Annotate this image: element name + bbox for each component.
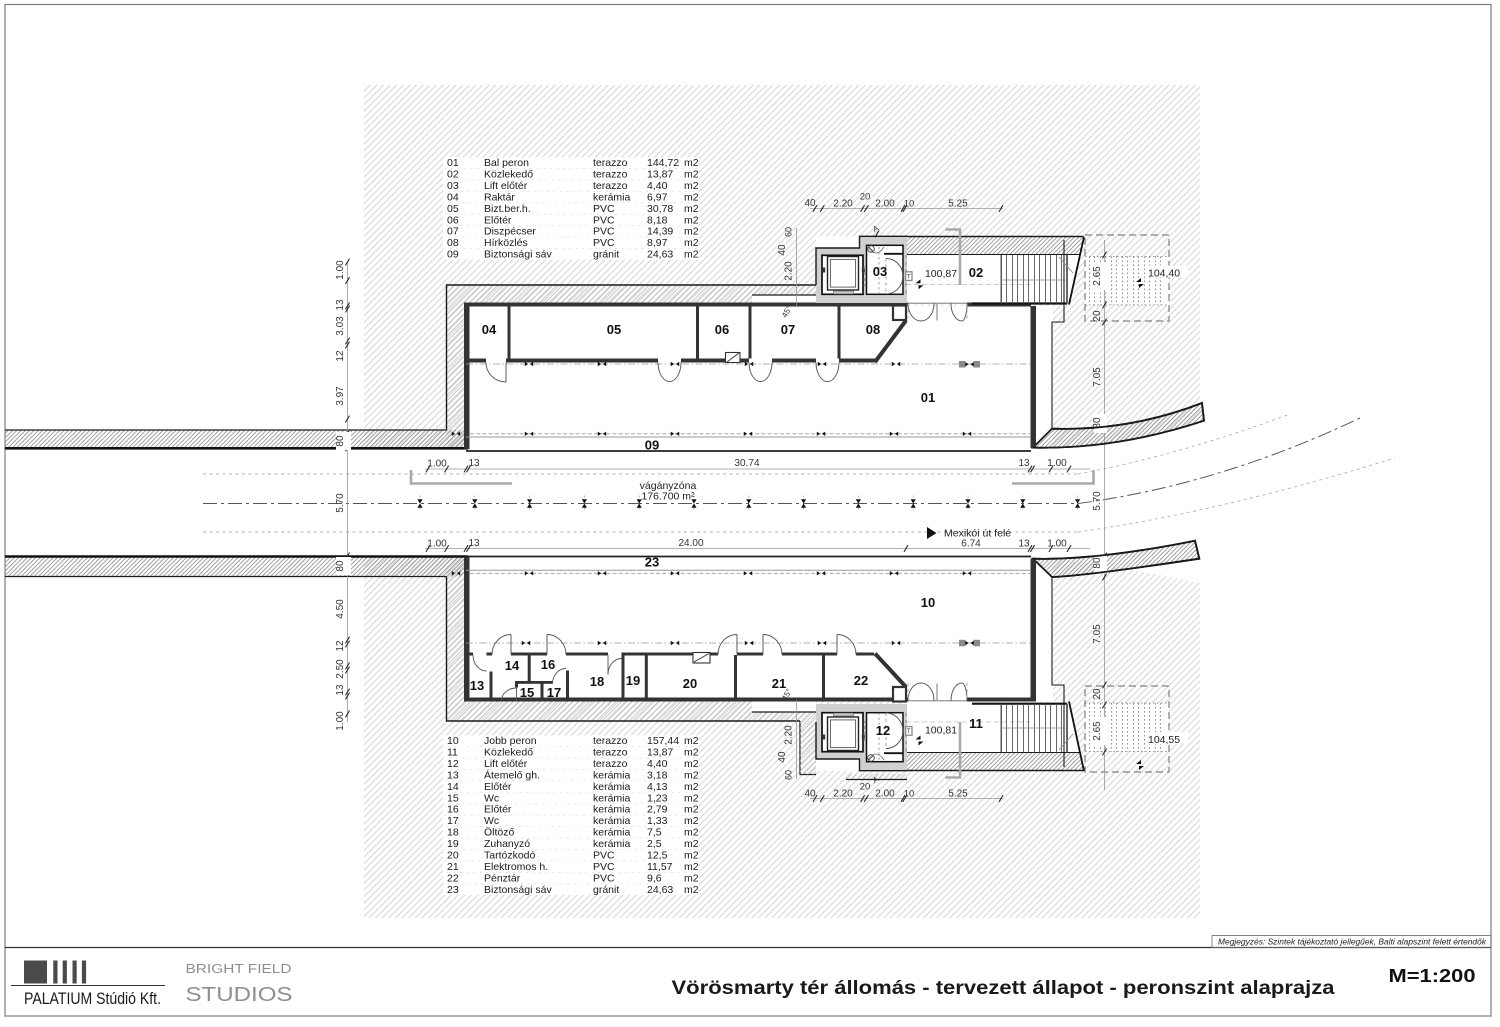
svg-text:80: 80: [335, 560, 346, 572]
svg-text:kerámia: kerámia: [593, 827, 631, 839]
svg-text:T: T: [907, 728, 911, 735]
svg-text:Lift előtér: Lift előtér: [484, 758, 528, 770]
svg-text:16: 16: [447, 804, 459, 816]
svg-text:157,44: 157,44: [647, 735, 679, 747]
svg-text:09: 09: [645, 438, 659, 453]
svg-text:2.20: 2.20: [833, 789, 853, 800]
svg-text:5.25: 5.25: [948, 789, 968, 800]
svg-text:21: 21: [447, 861, 459, 873]
svg-text:1.00: 1.00: [427, 459, 447, 470]
svg-text:11: 11: [447, 746, 458, 758]
svg-text:kerámia: kerámia: [593, 804, 631, 816]
svg-text:20: 20: [860, 192, 871, 203]
svg-text:7.05: 7.05: [1092, 367, 1103, 387]
svg-text:2.20: 2.20: [784, 261, 795, 281]
svg-text:Közlekedő: Közlekedő: [484, 168, 533, 180]
svg-text:5.25: 5.25: [948, 199, 968, 210]
svg-text:Előtér: Előtér: [484, 214, 512, 226]
svg-text:13,87: 13,87: [647, 746, 673, 758]
svg-text:STUDIOS: STUDIOS: [186, 984, 293, 1006]
svg-text:01: 01: [921, 390, 935, 405]
svg-text:terazzo: terazzo: [593, 180, 628, 192]
svg-text:gránit: gránit: [593, 884, 619, 896]
svg-text:PVC: PVC: [593, 226, 615, 238]
svg-text:terazzo: terazzo: [593, 758, 628, 770]
svg-text:9,6: 9,6: [647, 872, 662, 884]
svg-text:12: 12: [447, 758, 459, 770]
svg-text:Előtér: Előtér: [484, 781, 512, 793]
svg-text:7.05: 7.05: [1092, 624, 1103, 644]
svg-text:1,33: 1,33: [647, 815, 668, 827]
svg-text:Wc: Wc: [484, 792, 499, 804]
svg-text:m2: m2: [684, 226, 699, 238]
svg-text:kerámia: kerámia: [593, 838, 631, 850]
svg-text:m2: m2: [684, 850, 699, 862]
svg-text:08: 08: [447, 237, 459, 249]
svg-text:06: 06: [715, 322, 729, 337]
svg-text:13: 13: [1018, 458, 1030, 469]
svg-text:12: 12: [335, 640, 346, 652]
svg-text:100,87: 100,87: [925, 268, 957, 280]
svg-text:2,79: 2,79: [647, 804, 668, 816]
svg-text:PALATIUM Stúdió Kft.: PALATIUM Stúdió Kft.: [24, 989, 161, 1008]
svg-text:2.65: 2.65: [1092, 266, 1103, 286]
svg-text:Elektromos h.: Elektromos h.: [484, 861, 548, 873]
svg-text:Megjegyzés: Szintek tájékoztat: Megjegyzés: Szintek tájékoztató jellegűe…: [1218, 937, 1487, 947]
svg-text:22: 22: [447, 872, 459, 884]
svg-text:104,55: 104,55: [1148, 734, 1180, 746]
svg-text:m2: m2: [684, 157, 699, 169]
svg-text:80: 80: [1092, 557, 1103, 569]
svg-text:Biztonsági sáv: Biztonsági sáv: [484, 884, 552, 896]
svg-text:Bal peron: Bal peron: [484, 157, 529, 169]
svg-text:m2: m2: [684, 884, 699, 896]
svg-text:23: 23: [447, 884, 459, 896]
svg-text:m2: m2: [684, 249, 699, 261]
svg-text:12: 12: [335, 350, 346, 362]
svg-text:11: 11: [969, 716, 983, 731]
svg-text:24.00: 24.00: [678, 538, 703, 549]
svg-text:gránit: gránit: [593, 249, 619, 261]
svg-text:13: 13: [468, 458, 480, 469]
svg-text:BRIGHT FIELD: BRIGHT FIELD: [186, 961, 292, 976]
svg-text:30,78: 30,78: [647, 203, 673, 215]
svg-text:m2: m2: [684, 180, 699, 192]
svg-text:20: 20: [1092, 310, 1103, 322]
svg-text:4.50: 4.50: [335, 599, 346, 619]
svg-text:m2: m2: [684, 827, 699, 839]
svg-text:Közlekedő: Közlekedő: [484, 746, 533, 758]
svg-text:02: 02: [969, 265, 983, 280]
svg-text:PVC: PVC: [593, 237, 615, 249]
svg-text:Bizt.ber.h.: Bizt.ber.h.: [484, 203, 531, 215]
svg-text:3.97: 3.97: [335, 386, 346, 406]
svg-text:5.70: 5.70: [335, 493, 346, 513]
svg-text:Lift előtér: Lift előtér: [484, 180, 528, 192]
svg-text:20: 20: [447, 850, 459, 862]
svg-text:kerámia: kerámia: [593, 815, 631, 827]
svg-text:Raktár: Raktár: [484, 191, 515, 203]
svg-text:144,72: 144,72: [647, 157, 679, 169]
svg-text:m2: m2: [684, 838, 699, 850]
svg-text:terazzo: terazzo: [593, 746, 628, 758]
svg-text:Wc: Wc: [484, 815, 499, 827]
svg-text:02: 02: [447, 168, 459, 180]
svg-text:m2: m2: [684, 872, 699, 884]
svg-text:2,5: 2,5: [647, 838, 662, 850]
svg-text:16: 16: [541, 657, 555, 672]
svg-text:17: 17: [547, 685, 561, 700]
svg-text:m2: m2: [684, 769, 699, 781]
svg-text:8,97: 8,97: [647, 237, 668, 249]
svg-text:100,81: 100,81: [925, 725, 957, 737]
svg-text:Hírközlés: Hírközlés: [484, 237, 528, 249]
svg-text:T: T: [907, 274, 911, 281]
svg-text:11,57: 11,57: [647, 861, 673, 873]
svg-text:176.700 m²: 176.700 m²: [641, 491, 695, 503]
svg-text:07: 07: [781, 322, 795, 337]
svg-text:06: 06: [447, 214, 459, 226]
svg-text:4,40: 4,40: [647, 758, 668, 770]
svg-text:Vörösmarty tér állomás - terv: Vörösmarty tér állomás - tervezett állap…: [672, 978, 1335, 999]
svg-text:PVC: PVC: [593, 872, 615, 884]
svg-text:19: 19: [626, 673, 640, 688]
svg-text:22: 22: [854, 673, 868, 688]
svg-text:3.03: 3.03: [335, 316, 346, 336]
svg-text:24,63: 24,63: [647, 884, 673, 896]
svg-text:m2: m2: [684, 168, 699, 180]
svg-text:40: 40: [777, 751, 788, 763]
svg-text:10: 10: [904, 199, 915, 210]
svg-text:kerámia: kerámia: [593, 769, 631, 781]
svg-text:80: 80: [335, 435, 346, 447]
svg-text:Diszpécser: Diszpécser: [484, 226, 536, 238]
svg-text:7,5: 7,5: [647, 827, 662, 839]
svg-text:m2: m2: [684, 746, 699, 758]
svg-text:12,5: 12,5: [647, 850, 668, 862]
svg-text:03: 03: [873, 264, 887, 279]
svg-text:PVC: PVC: [593, 214, 615, 226]
svg-text:2.20: 2.20: [833, 199, 853, 210]
svg-text:1.00: 1.00: [1047, 539, 1067, 550]
svg-text:Öltöző: Öltöző: [484, 827, 515, 839]
svg-text:m2: m2: [684, 861, 699, 873]
svg-text:Jobb peron: Jobb peron: [484, 735, 537, 747]
svg-text:3,18: 3,18: [647, 769, 668, 781]
svg-text:1.00: 1.00: [335, 260, 346, 280]
svg-text:2.50: 2.50: [335, 659, 346, 679]
svg-text:2.20: 2.20: [784, 725, 795, 745]
svg-text:1.00: 1.00: [335, 711, 346, 731]
svg-text:04: 04: [447, 191, 459, 203]
svg-text:13: 13: [468, 538, 480, 549]
svg-text:10: 10: [904, 789, 915, 800]
svg-text:kerámia: kerámia: [593, 191, 631, 203]
svg-text:08: 08: [866, 322, 880, 337]
svg-text:13,87: 13,87: [647, 168, 673, 180]
svg-text:kerámia: kerámia: [593, 792, 631, 804]
svg-text:13: 13: [1018, 539, 1030, 550]
svg-text:2.00: 2.00: [875, 199, 895, 210]
svg-text:m2: m2: [684, 203, 699, 215]
svg-text:13: 13: [335, 299, 346, 311]
svg-text:20: 20: [683, 676, 697, 691]
svg-text:104,40: 104,40: [1148, 268, 1180, 280]
svg-text:09: 09: [447, 249, 459, 261]
svg-text:m2: m2: [684, 758, 699, 770]
svg-text:1,23: 1,23: [647, 792, 668, 804]
svg-text:m2: m2: [684, 804, 699, 816]
svg-text:20: 20: [860, 782, 871, 793]
svg-text:03: 03: [447, 180, 459, 192]
svg-text:01: 01: [447, 157, 459, 169]
svg-text:PVC: PVC: [593, 861, 615, 873]
svg-text:PVC: PVC: [593, 850, 615, 862]
svg-text:m2: m2: [684, 191, 699, 203]
svg-text:07: 07: [447, 226, 459, 238]
svg-text:23: 23: [645, 555, 659, 570]
svg-text:Előtér: Előtér: [484, 804, 512, 816]
svg-text:Tartózkodó: Tartózkodó: [484, 850, 536, 862]
svg-text:1.00: 1.00: [427, 539, 447, 550]
svg-text:terazzo: terazzo: [593, 157, 628, 169]
svg-text:05: 05: [607, 322, 621, 337]
svg-text:40: 40: [804, 198, 816, 209]
svg-text:21: 21: [772, 676, 786, 691]
svg-text:terazzo: terazzo: [593, 735, 628, 747]
svg-text:13: 13: [335, 684, 346, 696]
svg-text:10: 10: [447, 735, 459, 747]
svg-text:15: 15: [520, 685, 534, 700]
svg-text:13: 13: [470, 678, 484, 693]
svg-text:15: 15: [447, 792, 459, 804]
svg-text:04: 04: [482, 322, 497, 337]
svg-text:8,18: 8,18: [647, 214, 668, 226]
svg-text:m2: m2: [684, 781, 699, 793]
svg-text:19: 19: [447, 838, 459, 850]
svg-text:PVC: PVC: [593, 203, 615, 215]
svg-text:60: 60: [784, 227, 794, 237]
svg-text:Pénztár: Pénztár: [484, 872, 521, 884]
svg-text:14: 14: [447, 781, 459, 793]
svg-text:terazzo: terazzo: [593, 168, 628, 180]
svg-text:20: 20: [1092, 688, 1103, 700]
svg-text:kerámia: kerámia: [593, 781, 631, 793]
svg-text:30.74: 30.74: [734, 458, 759, 469]
svg-text:4,40: 4,40: [647, 180, 668, 192]
svg-text:24,63: 24,63: [647, 249, 673, 261]
svg-text:m2: m2: [684, 792, 699, 804]
svg-text:Zuhanyzó: Zuhanyzó: [484, 838, 530, 850]
svg-text:m2: m2: [684, 237, 699, 249]
svg-text:18: 18: [590, 674, 604, 689]
svg-text:Biztonsági sáv: Biztonsági sáv: [484, 249, 552, 261]
svg-text:17: 17: [447, 815, 459, 827]
svg-text:5.70: 5.70: [1092, 491, 1103, 511]
svg-text:Átemelő gh.: Átemelő gh.: [484, 768, 540, 781]
svg-text:18: 18: [447, 827, 459, 839]
svg-text:6,97: 6,97: [647, 191, 668, 203]
svg-text:4,13: 4,13: [647, 781, 668, 793]
svg-text:m2: m2: [684, 214, 699, 226]
svg-text:13: 13: [447, 769, 459, 781]
svg-text:05: 05: [447, 203, 459, 215]
svg-text:40: 40: [804, 789, 816, 800]
svg-text:60: 60: [784, 770, 794, 780]
svg-text:6.74: 6.74: [961, 539, 981, 550]
svg-text:m2: m2: [684, 815, 699, 827]
svg-text:2.00: 2.00: [875, 789, 895, 800]
svg-text:M=1:200: M=1:200: [1389, 966, 1476, 986]
svg-text:10: 10: [921, 595, 935, 610]
svg-text:1.00: 1.00: [1047, 458, 1067, 469]
svg-text:2.65: 2.65: [1092, 721, 1103, 741]
svg-text:14,39: 14,39: [647, 226, 673, 238]
svg-text:14: 14: [505, 658, 520, 673]
svg-text:40: 40: [777, 244, 788, 256]
svg-text:12: 12: [876, 723, 890, 738]
svg-text:m2: m2: [684, 735, 699, 747]
